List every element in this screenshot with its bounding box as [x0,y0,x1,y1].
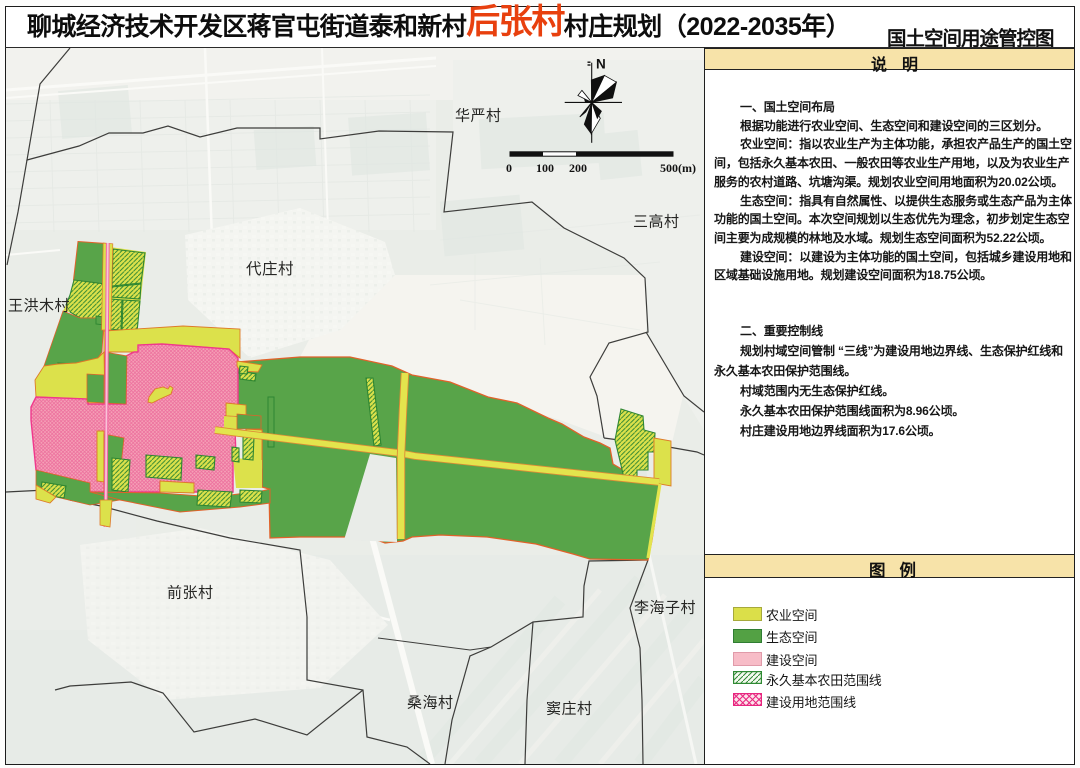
svg-text:三高村: 三高村 [633,214,680,231]
svg-text:桑海村: 桑海村 [407,695,454,712]
svg-text:代庄村: 代庄村 [246,260,294,278]
svg-text:窦庄村: 窦庄村 [546,700,593,718]
svg-text:华严村: 华严村 [455,108,502,125]
svg-text:0: 0 [506,161,512,175]
svg-text:李海子村: 李海子村 [634,600,696,617]
svg-text:前张村: 前张村 [167,585,214,602]
svg-text:N: N [596,57,606,72]
svg-text:100: 100 [536,161,554,175]
svg-text:王洪木村: 王洪木村 [8,298,70,315]
svg-text:200: 200 [569,161,587,175]
svg-text:500(m): 500(m) [660,161,696,175]
